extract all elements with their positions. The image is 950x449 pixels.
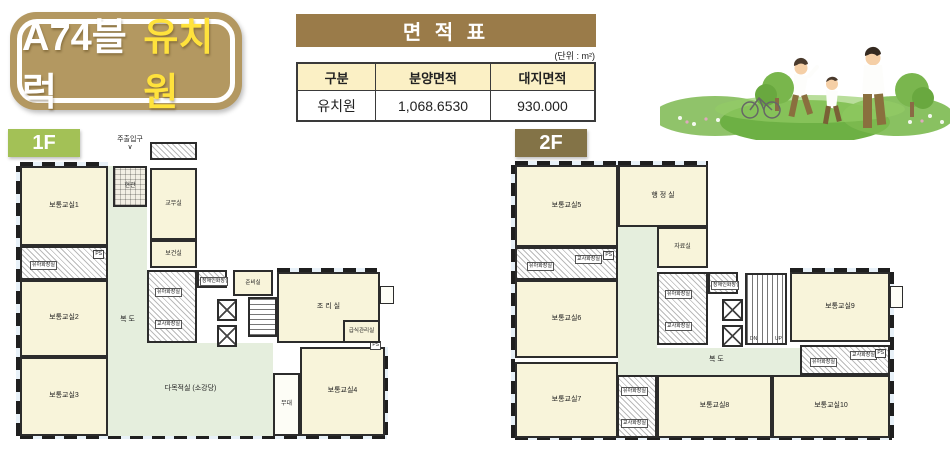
room-admin-office: 행 정 실 (618, 165, 708, 227)
elevator-icon (217, 325, 237, 347)
room-label: 장애인화장실 (711, 281, 739, 290)
entrance-arrow-icon: ∨ (127, 144, 132, 151)
area-table-grid: 구분 분양면적 대지면적 유치원 1,068.6530 930.000 (296, 62, 596, 122)
room-label: 보통교실5 (552, 202, 582, 210)
room-label: 보통교실9 (825, 303, 855, 311)
room-label: 현관 (124, 183, 135, 190)
floorplan-1f: 주출입구 ∨ 복 도 다목적실 (소강당) 보통교실1 유아화장실 PS 보통교… (15, 136, 415, 446)
room-classroom-3: 보통교실3 (20, 357, 108, 436)
room-classroom-4: 보통교실4 PS (300, 347, 385, 436)
room-label: 교사화장실 (621, 419, 648, 428)
room-label: 보통교실6 (552, 315, 582, 323)
room-classroom-10: 보통교실10 (772, 375, 890, 438)
room-meal-admin: 급식관리실 (343, 320, 380, 343)
building-kind-title: 유치원 (143, 6, 230, 116)
room-label: 유아화장실 (527, 262, 554, 271)
room-label: 보통교실1 (49, 202, 79, 210)
room-label: 유아화장실 (810, 358, 837, 367)
room-label: 보통교실3 (49, 392, 79, 400)
title-badge: A74블럭 유치원 (10, 12, 242, 110)
room-label: 유아화장실 (30, 261, 57, 270)
main-entrance-text: 주출입구 (117, 136, 143, 143)
room-toilet-block: 유아화장실 교사화장실 PS (515, 247, 618, 280)
room-classroom-7: 보통교실7 (515, 362, 618, 438)
elevator-icon (722, 299, 743, 321)
room-label: 보통교실7 (552, 396, 582, 404)
room-label: 보통교실2 (49, 314, 79, 322)
room-label: 준비실 (245, 280, 260, 286)
room-classroom-9: 보통교실9 (790, 272, 890, 342)
room-label: 교사화장실 (665, 322, 692, 331)
room-label: 조 리 실 (317, 303, 340, 311)
room-label: 장애인화장실 (200, 277, 228, 286)
elevator-icon (217, 299, 237, 321)
room-label: 교사화장실 (850, 351, 877, 360)
room-classroom-5: 보통교실5 (515, 165, 618, 247)
room-label: 복 도 (108, 316, 147, 324)
room-prep-room: 준비실 (233, 270, 273, 296)
col-header-category: 구분 (297, 63, 376, 91)
room-health-room: 보건실 (150, 240, 197, 268)
room-label: 보통교실10 (814, 402, 848, 410)
stairs-up-label: UP (775, 336, 782, 342)
elevator-icon (722, 325, 743, 347)
title-badge-inner: A74블럭 유치원 (17, 19, 235, 103)
room-teachers-office: 교무실 (150, 168, 197, 240)
room-label: 유아화장실 (665, 290, 692, 299)
room-label: 행 정 실 (651, 192, 674, 200)
cell-category: 유치원 (297, 91, 376, 122)
room-label: 보건실 (165, 251, 182, 258)
room-classroom-8: 보통교실8 (657, 375, 772, 438)
col-header-sale-area: 분양면적 (376, 63, 491, 91)
room-classroom-6: 보통교실6 (515, 280, 618, 358)
room-toilet-block: 유아화장실 교사화장실 (147, 270, 197, 343)
room-label: 자료실 (674, 244, 691, 251)
room-classroom-1: 보통교실1 (20, 166, 108, 246)
cell-site-area: 930.000 (490, 91, 595, 122)
room-label: 교무실 (165, 201, 182, 208)
room-toilet-block: 유아화장실 PS (20, 246, 108, 280)
room-label: 교사화장실 (155, 320, 182, 329)
area-table-title: 면 적 표 (296, 14, 596, 47)
room-stage: 무대 (273, 373, 300, 436)
door-bump (890, 286, 903, 308)
room-disabled-toilet: 장애인화장실 (708, 272, 738, 294)
room-label: 유아화장실 (621, 387, 648, 396)
pipe-shaft-label: PS (875, 349, 886, 358)
room-label: 복 도 (709, 356, 724, 364)
col-header-site-area: 대지면적 (490, 63, 595, 91)
area-table-unit-note: (단위 : m²) (296, 47, 596, 62)
pipe-shaft-label: PS (603, 251, 614, 260)
entrance-ramp (150, 142, 197, 160)
table-row: 유치원 1,068.6530 930.000 (297, 91, 595, 122)
page: A74블럭 유치원 면 적 표 (단위 : m²) 구분 분양면적 대지면적 유… (0, 0, 950, 449)
room-corridor: 복 도 (618, 348, 800, 375)
room-label: 유아화장실 (155, 288, 182, 297)
floorplan-2f: 복 도 보통교실5 유아화장실 교사화장실 PS 보통교실6 보통교실7 행 정… (505, 136, 925, 446)
block-title: A74블럭 (22, 6, 137, 116)
stairs-down-label: DN (750, 336, 757, 342)
main-entrance-label: 주출입구 ∨ (105, 136, 155, 151)
room-toilet-block: 유아화장실 교사화장실 PS (800, 345, 890, 375)
stairs-icon (248, 297, 277, 337)
family-illustration (660, 10, 950, 140)
area-table: 면 적 표 (단위 : m²) 구분 분양면적 대지면적 유치원 1,068.6… (296, 14, 596, 122)
room-label: 보통교실8 (700, 402, 730, 410)
room-archive: 자료실 (657, 227, 708, 268)
room-classroom-2: 보통교실2 (20, 280, 108, 357)
room-label: 교사화장실 (575, 255, 602, 264)
room-toilet-block: 유아화장실 교사화장실 (617, 375, 657, 438)
stairs-icon: DN UP (745, 273, 787, 345)
pipe-shaft-label: PS (93, 250, 104, 259)
room-toilet-block: 유아화장실 교사화장실 (657, 272, 708, 345)
room-label: 다목적실 (소강당) (165, 385, 217, 393)
room-label: 보통교실4 (328, 387, 358, 395)
cell-sale-area: 1,068.6530 (376, 91, 491, 122)
room-entrance-hall: 현관 (113, 166, 147, 207)
room-label: 무대 (281, 401, 292, 408)
room-multipurpose-hall: 다목적실 (소강당) (108, 343, 273, 436)
room-label: 급식관리실 (349, 328, 374, 334)
door-bump (380, 286, 394, 304)
room-disabled-toilet: 장애인화장실 (197, 270, 227, 288)
